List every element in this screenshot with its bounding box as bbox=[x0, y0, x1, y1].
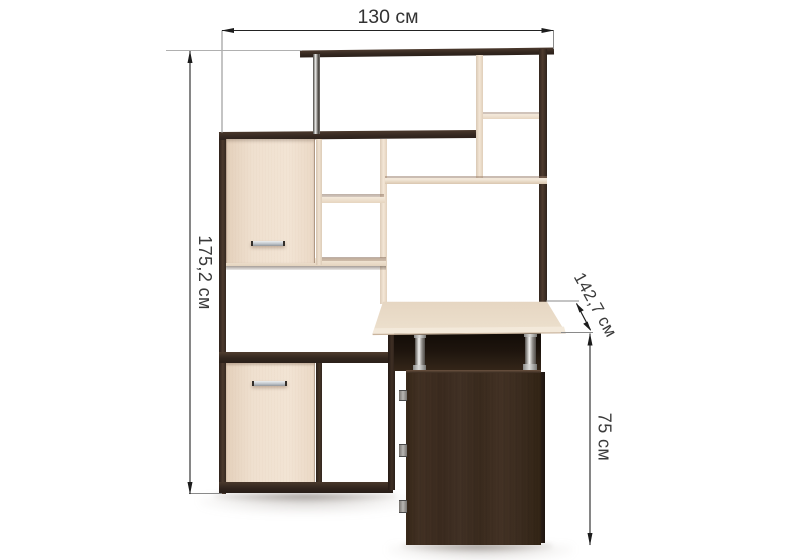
svg-text:75 см: 75 см bbox=[595, 413, 615, 461]
svg-text:175,2 см: 175,2 см bbox=[195, 235, 215, 310]
svg-text:130 см: 130 см bbox=[357, 6, 418, 28]
